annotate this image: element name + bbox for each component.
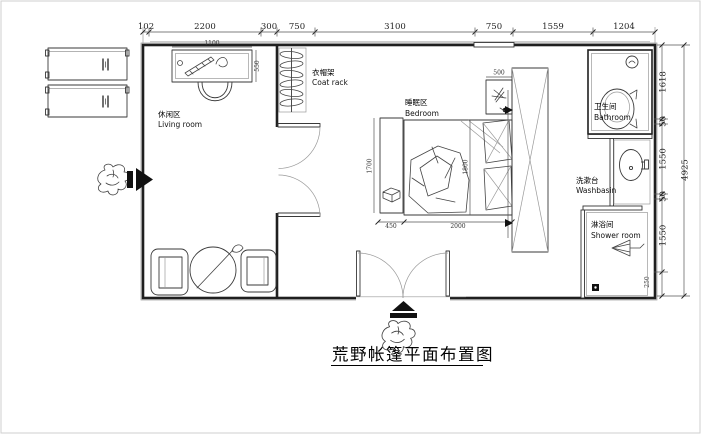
bathroom-label-zh: 卫生间 xyxy=(594,101,617,111)
dim-top-750b: 750 xyxy=(486,22,502,32)
dim-bench-width: 450 xyxy=(385,223,397,230)
bedroom-label-en: Bedroom xyxy=(405,109,439,118)
bedroom-label-zh: 睡眠区 xyxy=(405,98,428,107)
dim-top-750a: 750 xyxy=(289,22,305,32)
window-marking xyxy=(474,43,514,48)
dim-top-1559: 1559 xyxy=(542,22,564,32)
dim-top-1204: 1204 xyxy=(613,22,635,32)
dim-right-1550b: 1550 xyxy=(659,225,669,247)
dim-right-50a: 50 xyxy=(659,116,669,127)
dim-desk-depth: 550 xyxy=(254,60,261,72)
wall-above-shower xyxy=(583,206,642,210)
coatrack-label-en: Coat rack xyxy=(312,78,349,87)
dim-side-table: 500 xyxy=(493,70,505,77)
wall-below-bathroom xyxy=(588,135,652,139)
dim-right-total-4925: 4925 xyxy=(681,159,691,181)
plan-title: 荒野帐篷平面布置图 xyxy=(332,345,494,364)
dim-right-50b: 50 xyxy=(659,191,669,202)
dim-bed-side-right: 1800 xyxy=(463,159,470,174)
dim-bed-side-left: 1700 xyxy=(367,158,374,173)
coatrack-label-zh: 衣帽架 xyxy=(312,67,335,77)
dim-top-3100: 3100 xyxy=(384,22,406,32)
shower-label-en: Shower room xyxy=(591,231,641,240)
dim-right-1550a: 1550 xyxy=(659,148,669,170)
floor-drain-icon xyxy=(592,284,599,291)
washbasin-label-zh: 洗漱台 xyxy=(576,175,599,185)
living-room-label-zh: 休闲区 xyxy=(158,109,181,119)
dim-desk-width: 1100 xyxy=(204,40,219,47)
shower-wall xyxy=(581,210,585,298)
living-room-label-en: Living room xyxy=(158,120,202,129)
dim-top-300: 300 xyxy=(261,22,277,32)
washbasin-label-en: Washbasin xyxy=(576,186,617,195)
shower-label-zh: 淋浴间 xyxy=(591,219,614,229)
dim-bed-width: 2000 xyxy=(450,223,465,230)
floor-plan-drawing: 102 2200 300 750 3100 750 1559 1204 1618… xyxy=(0,0,701,434)
dim-top-2200: 2200 xyxy=(194,22,216,32)
washbasin-wall xyxy=(610,139,614,207)
dim-right-1618: 1618 xyxy=(659,71,669,93)
dim-top-102: 102 xyxy=(138,22,154,32)
bathroom-label-en: Bathroom xyxy=(594,113,631,122)
